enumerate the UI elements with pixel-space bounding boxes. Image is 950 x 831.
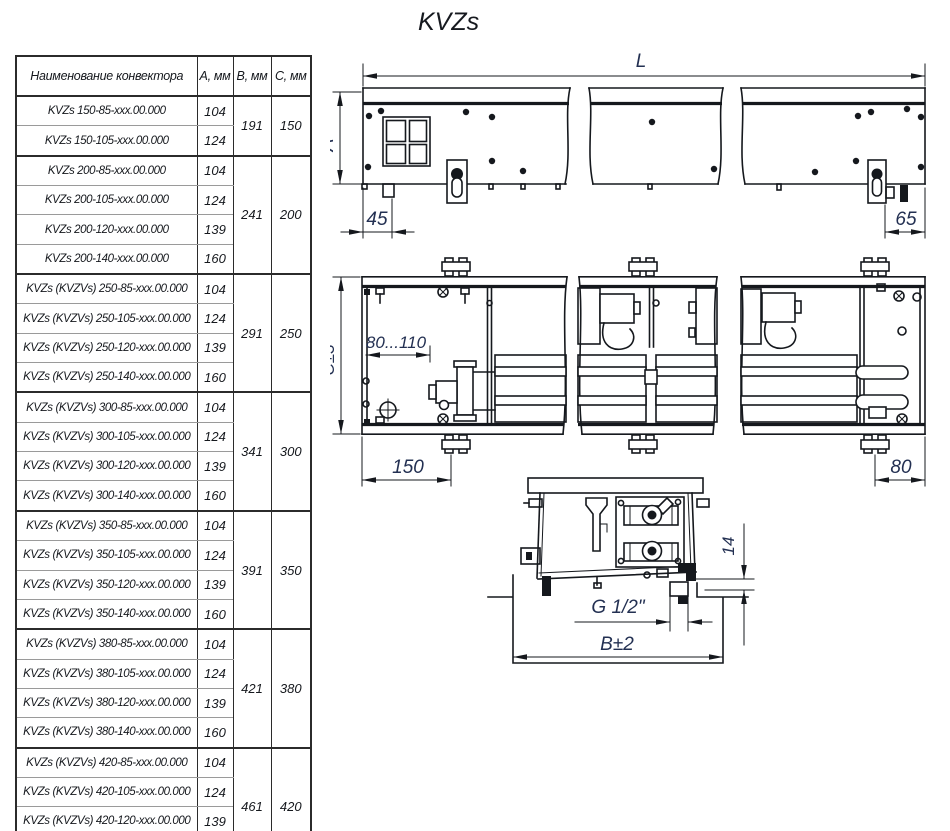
- dim-a-cell: 139: [197, 688, 233, 717]
- spec-table-wrap: Наименование конвектора А, мм В, мм С, м…: [15, 55, 312, 831]
- inlet-range-dimension: 80...110: [366, 333, 430, 362]
- table-row: KVZs 200-85-xxx.00.000104241200: [16, 156, 311, 186]
- convector-name-cell: KVZs 200-85-xxx.00.000: [16, 156, 197, 186]
- dim-gap-label: 14: [719, 537, 738, 556]
- dim-a-cell: 124: [197, 304, 233, 333]
- fan-grille: [741, 289, 761, 344]
- spec-table-body: KVZs 150-85-xxx.00.000104191150KVZs 150-…: [16, 96, 311, 831]
- dim-offset-left-label: 45: [366, 209, 388, 230]
- convector-name-cell: KVZs (KVZVs) 250-85-xxx.00.000: [16, 274, 197, 304]
- dim-a-cell: 124: [197, 777, 233, 806]
- dim-a-cell: 124: [197, 126, 233, 156]
- dim-c-cell: 150: [271, 96, 311, 156]
- dim-b-cell: 421: [233, 629, 271, 747]
- spec-table: Наименование конвектора А, мм В, мм С, м…: [15, 55, 312, 831]
- dim-b-cell: 461: [233, 748, 271, 831]
- side-view: 14 G 1/2" B±2: [455, 465, 775, 680]
- hydraulic-panel: [586, 497, 684, 567]
- convector-name-cell: KVZs (KVZVs) 350-120-xxx.00.000: [16, 570, 197, 599]
- convector-name-cell: KVZs (KVZVs) 420-85-xxx.00.000: [16, 748, 197, 778]
- dim-height-label: A: [330, 139, 338, 153]
- dim-a-cell: 139: [197, 570, 233, 599]
- pipe-stub: [856, 366, 908, 379]
- length-dimension: L: [363, 51, 925, 86]
- front-view: L A: [330, 40, 950, 250]
- front-segment-left: [362, 88, 570, 203]
- depth-dimension: C±3: [330, 277, 360, 434]
- page: { "title": "KVZs", "table": { "headers":…: [0, 0, 950, 831]
- valve-assembly: [429, 361, 495, 421]
- dim-a-cell: 139: [197, 215, 233, 244]
- convector-name-cell: KVZs (KVZVs) 250-140-xxx.00.000: [16, 363, 197, 393]
- dim-b-cell: 241: [233, 156, 271, 274]
- offset-left-dimension: 45: [341, 188, 414, 238]
- front-segment-middle: [589, 88, 723, 189]
- trench-width-dimension: B±2: [513, 634, 723, 660]
- dim-depth-label: C±3: [330, 344, 338, 376]
- convector-name-cell: KVZs (KVZVs) 380-85-xxx.00.000: [16, 629, 197, 659]
- convector-name-cell: KVZs (KVZVs) 350-140-xxx.00.000: [16, 599, 197, 629]
- convector-name-cell: KVZs (KVZVs) 300-140-xxx.00.000: [16, 481, 197, 511]
- dim-a-cell: 124: [197, 659, 233, 688]
- dim-a-cell: 124: [197, 186, 233, 215]
- dim-b-cell: 341: [233, 392, 271, 510]
- dim-a-cell: 104: [197, 748, 233, 778]
- height-dimension: A: [330, 92, 361, 184]
- plan-segment-middle: [578, 288, 717, 422]
- dim-b-cell: 291: [233, 274, 271, 392]
- plan-segment-left: 80...110: [363, 287, 566, 425]
- wall-bracket-right: [868, 160, 886, 203]
- table-header-row: Наименование конвектора А, мм В, мм С, м…: [16, 56, 311, 96]
- dim-a-cell: 124: [197, 422, 233, 451]
- convector-name-cell: KVZs 150-85-xxx.00.000: [16, 96, 197, 126]
- dim-c-cell: 300: [271, 392, 311, 510]
- dim-a-cell: 104: [197, 96, 233, 126]
- fan-motor: [762, 293, 795, 322]
- convector-name-cell: KVZs (KVZVs) 380-140-xxx.00.000: [16, 718, 197, 748]
- dim-trench-width-label: B±2: [600, 634, 634, 655]
- convector-name-cell: KVZs (KVZVs) 380-105-xxx.00.000: [16, 659, 197, 688]
- table-row: KVZs (KVZVs) 250-85-xxx.00.000104291250: [16, 274, 311, 304]
- col-header-c: С, мм: [271, 56, 311, 96]
- dim-offset-right-label: 65: [895, 209, 917, 230]
- col-header-a: А, мм: [197, 56, 233, 96]
- convector-name-cell: KVZs 200-105-xxx.00.000: [16, 186, 197, 215]
- table-row: KVZs (KVZVs) 300-85-xxx.00.000104341300: [16, 392, 311, 422]
- bracket-left-dimension: 150: [362, 437, 451, 486]
- dim-a-cell: 104: [197, 274, 233, 304]
- convector-name-cell: KVZs (KVZVs) 350-85-xxx.00.000: [16, 511, 197, 541]
- dim-bracket-right-label: 80: [890, 457, 912, 478]
- dim-length-label: L: [636, 51, 647, 72]
- dim-a-cell: 160: [197, 718, 233, 748]
- convector-name-cell: KVZs (KVZVs) 300-85-xxx.00.000: [16, 392, 197, 422]
- convector-name-cell: KVZs 200-140-xxx.00.000: [16, 244, 197, 274]
- dim-a-cell: 124: [197, 541, 233, 570]
- convector-name-cell: KVZs 200-120-xxx.00.000: [16, 215, 197, 244]
- thread-dimension: G 1/2": [575, 585, 712, 631]
- dim-a-cell: 160: [197, 363, 233, 393]
- plan-view: C±3: [330, 250, 950, 495]
- convector-name-cell: KVZs (KVZVs) 350-105-xxx.00.000: [16, 541, 197, 570]
- side-body: [521, 478, 709, 596]
- col-header-name: Наименование конвектора: [16, 56, 197, 96]
- drawing-sheet: KVZs Наименование конвектора А, мм В, мм…: [0, 0, 950, 831]
- col-header-b: В, мм: [233, 56, 271, 96]
- drawing-title: KVZs: [418, 8, 479, 37]
- fan-motor: [600, 294, 634, 323]
- plan-segment-right: [741, 284, 921, 424]
- fan-grille: [696, 288, 717, 344]
- dim-a-cell: 160: [197, 599, 233, 629]
- dim-inlet-range-label: 80...110: [366, 333, 427, 352]
- dim-a-cell: 104: [197, 629, 233, 659]
- dim-b-cell: 391: [233, 511, 271, 629]
- dim-c-cell: 200: [271, 156, 311, 274]
- dim-c-cell: 350: [271, 511, 311, 629]
- drain-pipe: [670, 582, 688, 604]
- dim-c-cell: 380: [271, 629, 311, 747]
- dim-a-cell: 104: [197, 511, 233, 541]
- dim-a-cell: 139: [197, 452, 233, 481]
- elbow-fitting: [678, 563, 696, 581]
- dim-b-cell: 191: [233, 96, 271, 156]
- dim-a-cell: 139: [197, 333, 233, 362]
- convector-name-cell: KVZs (KVZVs) 250-120-xxx.00.000: [16, 333, 197, 362]
- convector-name-cell: KVZs (KVZVs) 300-105-xxx.00.000: [16, 422, 197, 451]
- dim-a-cell: 160: [197, 244, 233, 274]
- convector-name-cell: KVZs 150-105-xxx.00.000: [16, 126, 197, 156]
- convector-name-cell: KVZs (KVZVs) 420-105-xxx.00.000: [16, 777, 197, 806]
- dim-a-cell: 104: [197, 392, 233, 422]
- dim-thread-label: G 1/2": [591, 597, 645, 618]
- dim-bracket-left-label: 150: [392, 457, 424, 478]
- table-row: KVZs (KVZVs) 380-85-xxx.00.000104421380: [16, 629, 311, 659]
- wall-bracket-left: [447, 160, 467, 203]
- dim-a-cell: 160: [197, 481, 233, 511]
- table-row: KVZs (KVZVs) 350-85-xxx.00.000104391350: [16, 511, 311, 541]
- dim-c-cell: 250: [271, 274, 311, 392]
- convector-name-cell: KVZs (KVZVs) 380-120-xxx.00.000: [16, 688, 197, 717]
- gap-dimension: 14: [696, 524, 754, 645]
- table-row: KVZs (KVZVs) 420-85-xxx.00.000104461420: [16, 748, 311, 778]
- dim-a-cell: 139: [197, 807, 233, 831]
- convector-name-cell: KVZs (KVZVs) 300-120-xxx.00.000: [16, 452, 197, 481]
- table-row: KVZs 150-85-xxx.00.000104191150: [16, 96, 311, 126]
- dim-a-cell: 104: [197, 156, 233, 186]
- convector-name-cell: KVZs (KVZVs) 250-105-xxx.00.000: [16, 304, 197, 333]
- convector-name-cell: KVZs (KVZVs) 420-120-xxx.00.000: [16, 807, 197, 831]
- dim-c-cell: 420: [271, 748, 311, 831]
- front-segment-right: [741, 88, 925, 203]
